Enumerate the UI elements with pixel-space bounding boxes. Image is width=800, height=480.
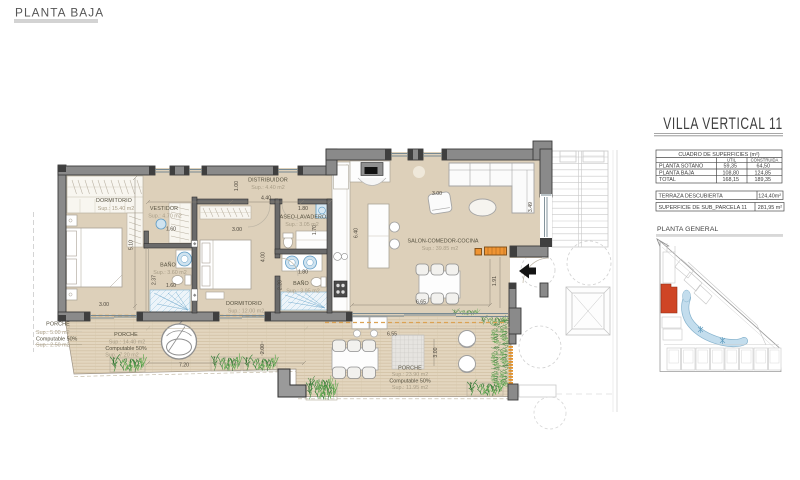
svg-text:1.80: 1.80 <box>298 270 308 276</box>
svg-text:DISTRIBUIDOR: DISTRIBUIDOR <box>248 178 288 184</box>
svg-text:PLANTA BAJA: PLANTA BAJA <box>15 6 104 20</box>
svg-text:BAÑO: BAÑO <box>160 262 176 269</box>
svg-text:Sup.: 2.50 m2: Sup.: 2.50 m2 <box>36 343 70 349</box>
svg-text:281,95 m²: 281,95 m² <box>758 205 782 211</box>
svg-text:Sup.: 23.90 m2: Sup.: 23.90 m2 <box>392 372 429 378</box>
svg-text:1.60: 1.60 <box>166 283 176 289</box>
svg-text:Sup.: 7.20 m2: Sup.: 7.20 m2 <box>105 353 139 359</box>
svg-text:PORCHE: PORCHE <box>114 332 138 338</box>
svg-text:Sup.: 5.00 m2: Sup.: 5.00 m2 <box>36 330 70 336</box>
svg-text:108,80: 108,80 <box>723 170 740 176</box>
svg-text:4.00: 4.00 <box>261 252 267 262</box>
svg-text:CUADRO DE SUPERFICIES (m²): CUADRO DE SUPERFICIES (m²) <box>678 152 759 158</box>
svg-text:SALON-COMEDOR-COCINA: SALON-COMEDOR-COCINA <box>408 239 479 245</box>
svg-text:6.65: 6.65 <box>416 300 426 306</box>
svg-text:Computable 50%: Computable 50% <box>105 346 147 352</box>
svg-text:64,50: 64,50 <box>757 164 771 170</box>
svg-text:Sup.: 11.95 m2: Sup.: 11.95 m2 <box>392 385 428 391</box>
svg-text:PORCHE: PORCHE <box>46 322 70 328</box>
svg-text:168,15: 168,15 <box>723 177 740 183</box>
svg-text:Sup.: 3.05 m2: Sup.: 3.05 m2 <box>285 222 319 228</box>
svg-text:Computable 50%: Computable 50% <box>389 379 431 385</box>
svg-text:1.80: 1.80 <box>298 206 308 212</box>
svg-text:124,85: 124,85 <box>755 170 772 176</box>
svg-text:VILLA VERTICAL 11: VILLA VERTICAL 11 <box>663 115 782 133</box>
svg-text:PLANTA SOTANO: PLANTA SOTANO <box>659 164 703 170</box>
svg-text:Sup.: 4.40 m2: Sup.: 4.40 m2 <box>251 185 285 191</box>
svg-text:3.49: 3.49 <box>528 202 534 212</box>
svg-text:3.00: 3.00 <box>232 227 242 233</box>
svg-text:2.37: 2.37 <box>152 275 158 285</box>
svg-text:DORMITORIO: DORMITORIO <box>96 198 132 204</box>
svg-text:PLANTA BAJA: PLANTA BAJA <box>659 170 695 176</box>
svg-text:2.20: 2.20 <box>278 280 284 290</box>
svg-text:189,35: 189,35 <box>755 177 772 183</box>
svg-text:6.40: 6.40 <box>354 228 360 238</box>
svg-text:ÚTIL: ÚTIL <box>727 158 737 163</box>
svg-text:TERRAZA DESCUBIERTA: TERRAZA DESCUBIERTA <box>659 193 724 199</box>
svg-text:PORCHE: PORCHE <box>398 366 422 372</box>
svg-text:BAÑO: BAÑO <box>293 280 309 287</box>
svg-text:DORMITORIO: DORMITORIO <box>226 301 262 307</box>
svg-text:1.60: 1.60 <box>166 227 176 233</box>
svg-text:Sup.: 4.70 m2: Sup.: 4.70 m2 <box>148 214 182 220</box>
svg-text:PLANTA GENERAL: PLANTA GENERAL <box>657 226 718 233</box>
svg-text:6.55: 6.55 <box>387 332 397 338</box>
svg-text:2.00: 2.00 <box>260 344 266 354</box>
svg-text:Sup.: 15.40 m2: Sup.: 15.40 m2 <box>98 206 135 212</box>
svg-text:1.00: 1.00 <box>234 181 240 191</box>
svg-text:Sup.: 3.60 m2: Sup.: 3.60 m2 <box>153 270 187 276</box>
svg-text:Sup.: 39.85 m2: Sup.: 39.85 m2 <box>422 246 459 252</box>
svg-text:Sup.: 3.95 m2: Sup.: 3.95 m2 <box>286 289 320 295</box>
svg-text:1.91: 1.91 <box>492 276 498 286</box>
svg-text:CONSTRUIDA: CONSTRUIDA <box>751 158 779 163</box>
svg-text:Sup.: 12.00 m2: Sup.: 12.00 m2 <box>228 309 265 315</box>
svg-text:SUPERFICIE DE SUB_PARCELA 11: SUPERFICIE DE SUB_PARCELA 11 <box>659 205 747 211</box>
svg-text:5.10: 5.10 <box>129 240 135 250</box>
svg-text:59,35: 59,35 <box>724 164 738 170</box>
svg-text:4.40: 4.40 <box>261 196 271 202</box>
svg-text:TOTAL: TOTAL <box>659 177 676 183</box>
svg-text:7.20: 7.20 <box>179 363 189 369</box>
svg-text:3.00: 3.00 <box>433 347 439 357</box>
svg-text:Sup.: 14.40 m2: Sup.: 14.40 m2 <box>109 340 146 346</box>
svg-text:3.00: 3.00 <box>99 302 109 308</box>
svg-text:124,40m²: 124,40m² <box>758 193 781 199</box>
svg-text:VESTIDOR: VESTIDOR <box>150 206 178 212</box>
svg-text:3.00: 3.00 <box>432 191 442 197</box>
svg-text:ASEO-LAVADERO: ASEO-LAVADERO <box>280 215 327 221</box>
svg-text:Computable 50%: Computable 50% <box>36 337 78 343</box>
